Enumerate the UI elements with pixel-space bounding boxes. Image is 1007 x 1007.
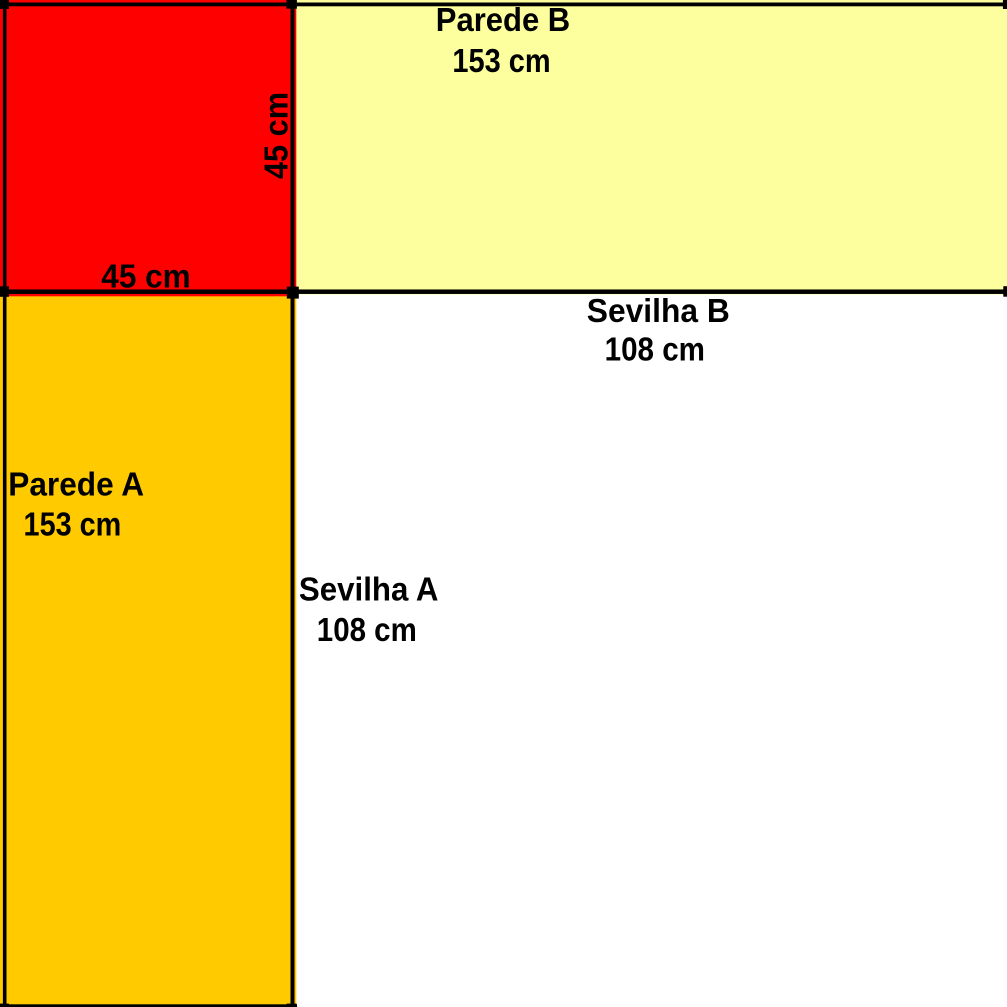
svg-text:Sevilha B: Sevilha B	[587, 292, 730, 329]
svg-text:Parede B: Parede B	[436, 1, 570, 38]
svg-text:Parede A: Parede A	[8, 465, 144, 502]
svg-text:45 cm: 45 cm	[257, 92, 294, 179]
svg-text:Sevilha A: Sevilha A	[299, 571, 439, 608]
svg-text:108 cm: 108 cm	[317, 611, 417, 648]
svg-text:153 cm: 153 cm	[24, 506, 122, 543]
svg-text:45 cm: 45 cm	[101, 257, 190, 294]
svg-text:153 cm: 153 cm	[452, 42, 550, 79]
svg-text:108 cm: 108 cm	[605, 331, 705, 368]
